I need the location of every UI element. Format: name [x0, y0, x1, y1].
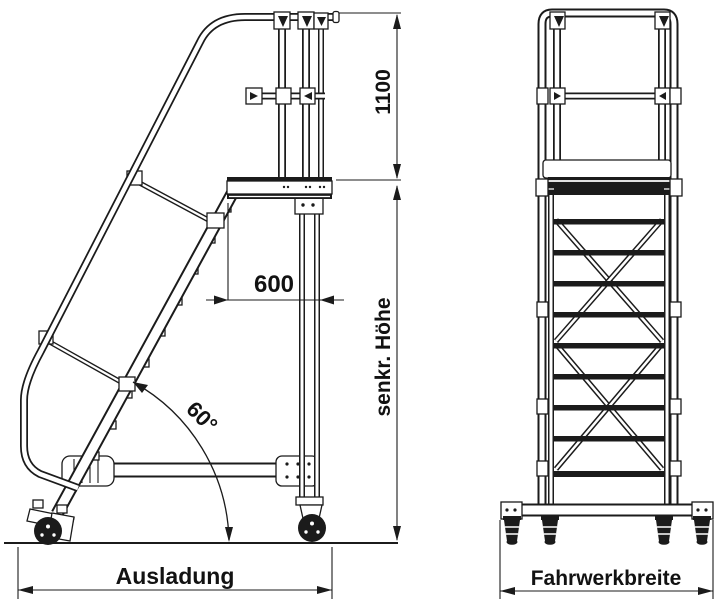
platform-depth-label: 600: [254, 271, 294, 298]
chassis-width-label: Fahrwerkbreite: [531, 567, 682, 590]
handrail-struts: [39, 171, 224, 391]
dimension-angle-60: 60°: [133, 382, 233, 542]
caster-wheel: [655, 516, 673, 545]
caster-wheels-front-view: [503, 516, 711, 545]
guardrail-front: [537, 12, 681, 162]
support-beam: [62, 456, 318, 486]
chassis-beam: [501, 502, 713, 519]
gusset-plate-rear: [276, 456, 318, 486]
drawing-canvas: 1100 senkr. Höhe 600 60° Ausladung Fahrw…: [0, 0, 718, 600]
dimension-600: 600: [206, 203, 344, 305]
platform: [227, 177, 332, 199]
guardrail-height-label: 1100: [372, 69, 395, 115]
caster-wheel: [541, 516, 559, 545]
handrail-end-cap: [333, 12, 339, 23]
technical-drawing: 1100 senkr. Höhe 600 60° Ausladung Fahrw…: [0, 0, 718, 600]
dimension-ausladung: Ausladung: [18, 547, 332, 599]
caster-wheel: [693, 516, 711, 545]
dimension-senkrechte-hoehe: senkr. Höhe: [372, 185, 401, 541]
stair-angle-label: 60°: [181, 396, 222, 437]
overhang-label: Ausladung: [116, 563, 235, 589]
stair-treads-front: [554, 188, 664, 477]
caster-wheel: [503, 516, 521, 545]
ladder-side-view: [4, 12, 398, 546]
guardrail: [246, 12, 328, 178]
outer-guard-frame: [542, 13, 674, 505]
caster-wheel-front: [27, 500, 74, 545]
handrail: [24, 12, 339, 489]
caster-wheel-rear: [296, 497, 326, 542]
dimension-fahrwerkbreite: Fahrwerkbreite: [500, 520, 713, 599]
dimension-1100: 1100: [336, 13, 401, 180]
vertical-height-label: senkr. Höhe: [372, 297, 395, 416]
post-collars: [537, 302, 681, 476]
rear-leg: [295, 197, 323, 500]
ladder-front-view: [501, 12, 713, 545]
